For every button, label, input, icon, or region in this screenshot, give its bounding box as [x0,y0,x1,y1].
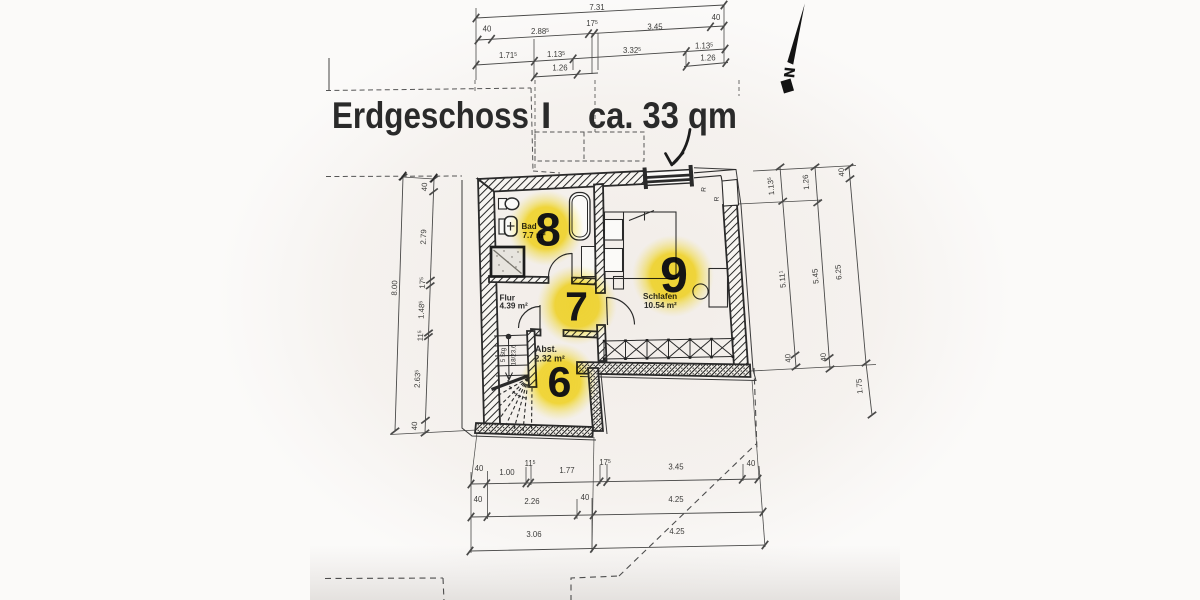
svg-text:3.45: 3.45 [647,23,663,32]
svg-text:1.77: 1.77 [559,466,574,475]
svg-text:40: 40 [410,421,419,431]
svg-text:7: 7 [565,284,588,330]
svg-text:7.31: 7.31 [589,3,604,12]
svg-text:1.75: 1.75 [854,378,864,395]
svg-text:6.25: 6.25 [833,264,843,281]
svg-text:40: 40 [819,352,829,362]
svg-text:1.26: 1.26 [801,174,811,190]
svg-text:1.26: 1.26 [552,64,567,73]
svg-text:Erdgeschoss: Erdgeschoss [332,95,529,136]
svg-text:1.26: 1.26 [700,54,715,63]
svg-text:3.45: 3.45 [668,463,684,472]
svg-text:40: 40 [747,459,756,468]
svg-text:40: 40 [581,493,590,502]
svg-text:4.25: 4.25 [668,495,684,504]
svg-text:40: 40 [420,182,429,192]
svg-text:40: 40 [783,353,793,363]
svg-text:9: 9 [660,247,688,303]
svg-text:R: R [714,196,721,202]
svg-text:18/23,6: 18/23,6 [511,344,518,365]
svg-text:40: 40 [483,25,492,34]
svg-text:ca. 33 qm: ca. 33 qm [588,95,737,136]
svg-text:40: 40 [474,495,483,504]
svg-text:2.26: 2.26 [524,497,539,506]
svg-text:6: 6 [548,359,572,407]
svg-text:40: 40 [475,464,484,473]
svg-text:4.25: 4.25 [669,527,685,536]
svg-text:5 Stg: 5 Stg [500,347,507,362]
svg-text:5.45: 5.45 [810,268,820,285]
svg-text:40: 40 [837,167,847,177]
svg-text:40: 40 [712,13,721,22]
svg-text:8: 8 [535,204,561,256]
svg-text:I: I [541,95,551,136]
svg-text:4.39 m²: 4.39 m² [500,302,528,311]
svg-text:R: R [701,187,708,193]
svg-text:8.00: 8.00 [390,280,400,296]
svg-text:3.06: 3.06 [526,530,541,539]
svg-text:1.00: 1.00 [499,468,515,477]
svg-text:2.79: 2.79 [419,229,429,244]
